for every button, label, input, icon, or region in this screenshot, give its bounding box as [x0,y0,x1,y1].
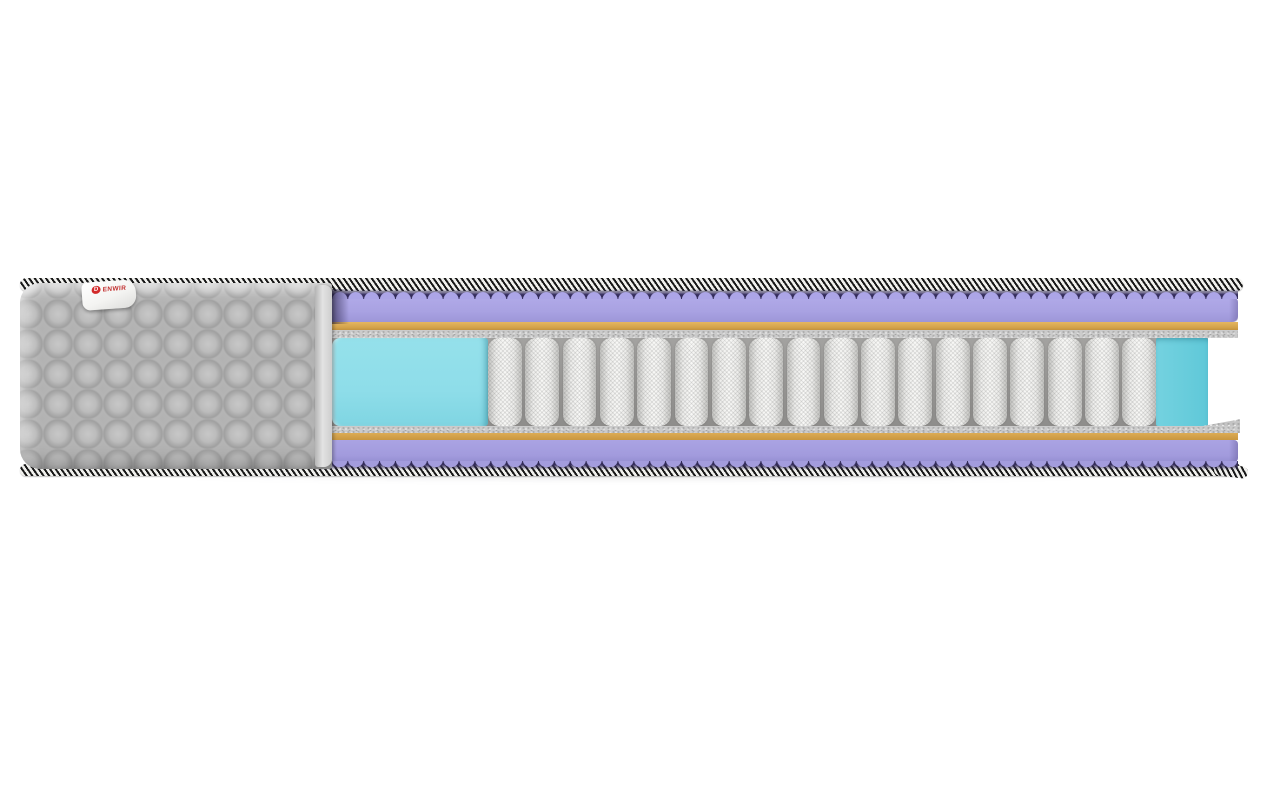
pocket-spring [525,338,559,426]
brand-logo-icon: D [91,286,100,295]
brand-label-tab: D ENWIR [81,279,137,311]
pocket-spring [973,338,1007,426]
pocket-spring [1085,338,1119,426]
pocket-spring [936,338,970,426]
wave-foam-top-surface [316,289,1238,299]
firm-layer-bottom [316,433,1238,440]
product-image-stage: D ENWIR [0,0,1280,800]
pocket-spring [787,338,821,426]
mattress: D ENWIR [20,278,1243,474]
pocket-spring [712,338,746,426]
foam-right-face [1229,440,1238,462]
edge-support-foam-left [332,338,488,426]
pocket-spring [675,338,709,426]
cut-shadow [331,289,349,324]
brand-label-text: ENWIR [102,284,126,295]
pocket-spring [1122,338,1156,426]
pocket-spring [1010,338,1044,426]
foam-right-face [1229,298,1238,322]
cover-cut-edge [315,285,332,467]
pocket-spring [488,338,522,426]
wave-foam-top [316,298,1238,322]
edge-support-foam-right [1156,338,1208,426]
pocket-spring [563,338,597,426]
firm-layer-top [316,322,1238,330]
pocket-spring [898,338,932,426]
wave-foam-bottom [316,440,1238,462]
pocket-spring [749,338,783,426]
pocket-spring [824,338,858,426]
pocket-spring [600,338,634,426]
pocket-spring [861,338,895,426]
felt-pad-bottom [316,426,1238,433]
pocket-spring [1048,338,1082,426]
quilted-cover [20,283,332,469]
wave-foam-bottom-surface [316,461,1238,470]
felt-pad-top [316,330,1238,338]
pocket-spring [637,338,671,426]
pocket-springs-row [488,338,1156,426]
spring-core-cavity [316,338,1208,426]
